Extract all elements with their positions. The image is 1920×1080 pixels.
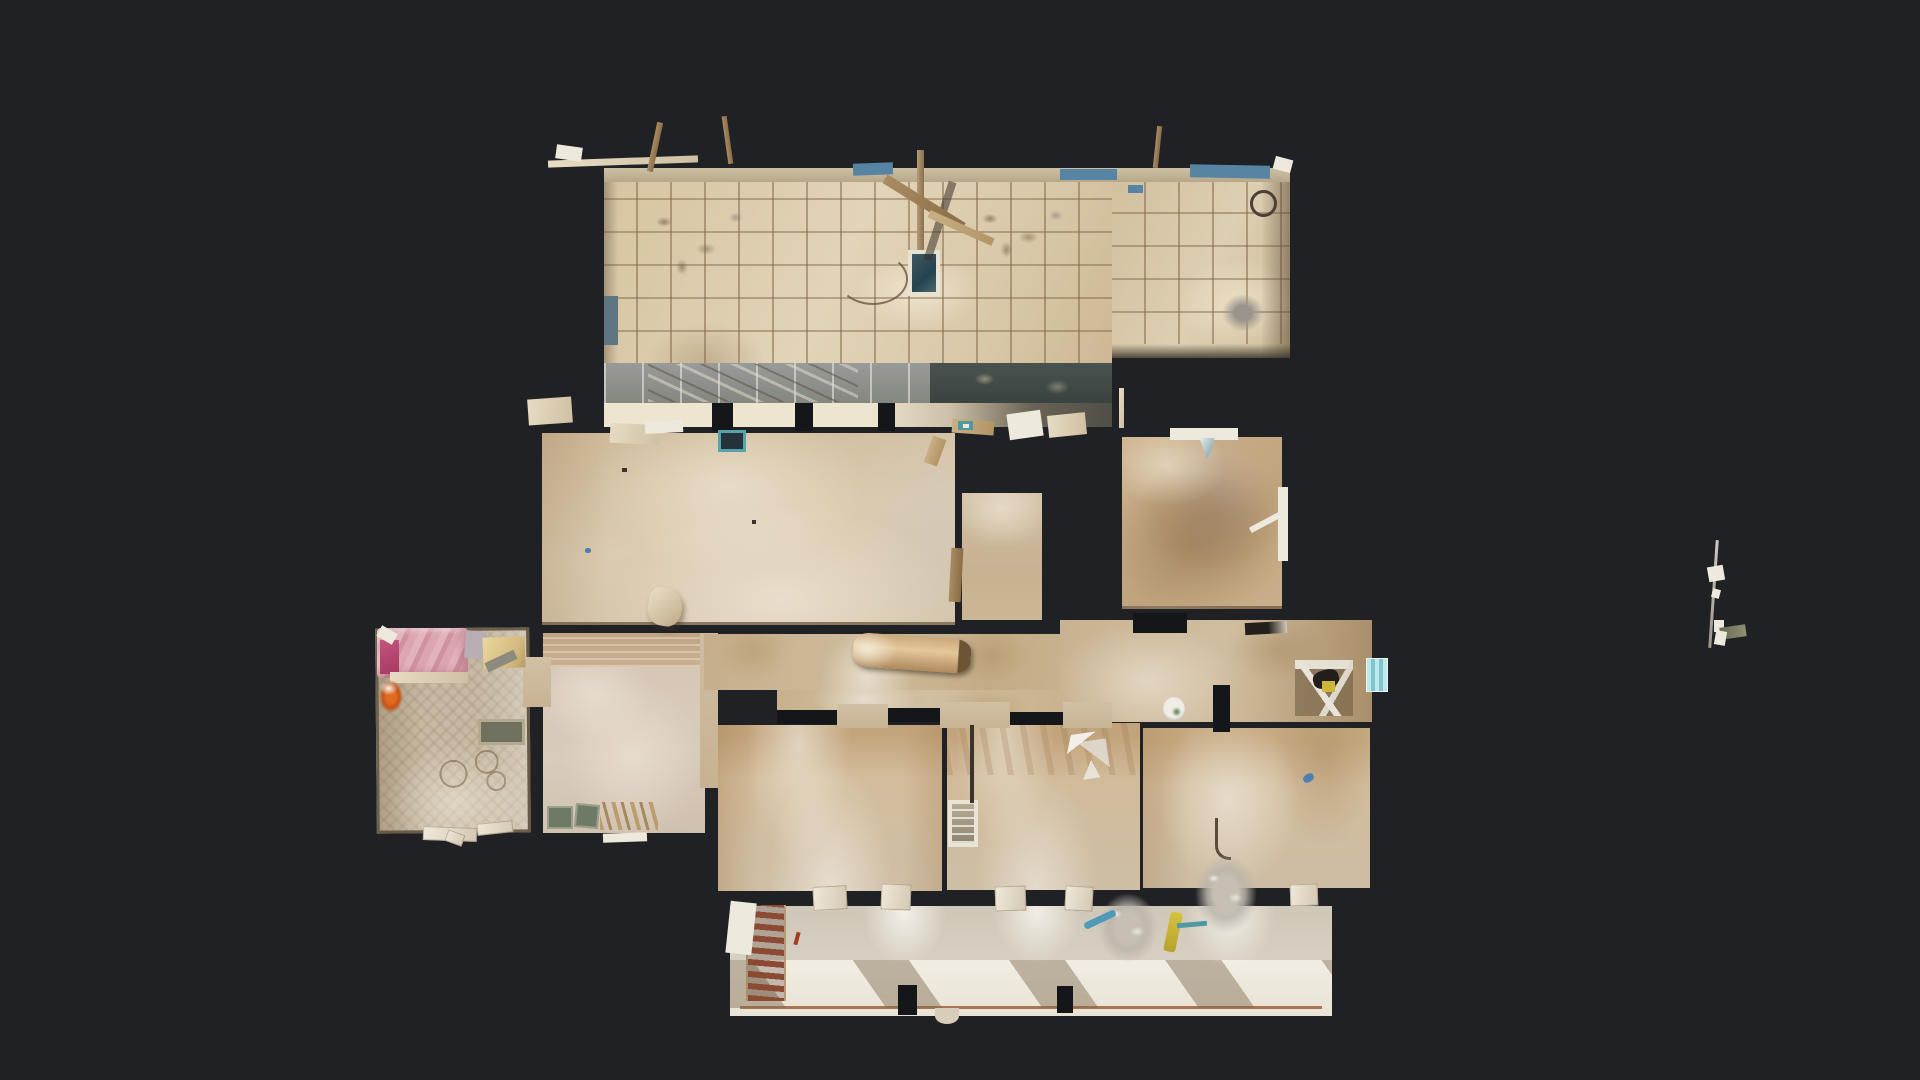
e-stick-pile-debris [600, 802, 658, 830]
tile-clutter-b-debris [968, 200, 1078, 262]
d-orange-debris [379, 680, 403, 713]
white-crumple-debris [1006, 410, 1043, 440]
alcove-darkbit-debris [1245, 621, 1288, 635]
slot-g1-debris [777, 710, 837, 724]
floor-ring-debris [1250, 190, 1277, 217]
door-bridge-g[interactable] [837, 704, 888, 728]
stick-c-debris [1153, 126, 1162, 168]
slot-v1-debris [1213, 685, 1230, 732]
wall-slot-c-debris [878, 403, 895, 431]
wall-slot-a-debris [712, 403, 733, 431]
door-bridge-de[interactable] [523, 657, 551, 707]
tile-clutter-a-debris [640, 195, 760, 285]
slot-h1-debris [1010, 712, 1063, 725]
alcove-yellow-debris [1322, 681, 1335, 692]
sill-h1-debris [995, 885, 1027, 911]
d-magenta-debris [380, 640, 399, 674]
blue-patch-c-debris [1190, 164, 1270, 178]
fragment-a-debris [1707, 565, 1725, 583]
wall-slot-b-debris [795, 403, 813, 431]
v-sliver-debris [1119, 388, 1124, 428]
floorplan-viewer-canvas[interactable] [0, 0, 1920, 1080]
door-shards-debris [1047, 730, 1111, 784]
d-sill-b-debris [476, 820, 513, 836]
sill-i1-debris [1290, 884, 1319, 907]
wire-arc-debris [838, 253, 908, 305]
balcony-bump-debris [935, 1008, 959, 1024]
door-bridge-h[interactable] [940, 702, 1010, 728]
c-doorframe-debris [1278, 487, 1288, 561]
e-sheet-debris [603, 832, 647, 843]
south-room-1[interactable] [718, 725, 942, 891]
balcony-slot-a-debris [898, 985, 917, 1015]
h-pole-debris [970, 725, 974, 803]
d-rug-debris [478, 719, 525, 745]
d-wires-debris [425, 745, 520, 793]
salon-room[interactable] [542, 433, 955, 625]
balcony-dark-debris [930, 363, 1112, 403]
fragment-d-debris [1714, 630, 1727, 646]
h-doorframe-debris [948, 800, 978, 847]
alcove-tealbox-debris [1366, 658, 1388, 692]
i-hookwire-debris [1215, 818, 1231, 860]
rubble-b-debris [1098, 893, 1158, 963]
blue-dot-r-debris [1128, 185, 1143, 193]
door-bridge-i[interactable] [1063, 702, 1112, 728]
sill-g2-debris [881, 883, 912, 910]
balcony-clutter-debris [648, 364, 858, 402]
stick-a-debris [647, 122, 663, 172]
blue-patch-b-debris [1060, 169, 1117, 180]
floor-stain-debris [1222, 294, 1264, 332]
e-greenbox-a-debris [547, 806, 573, 829]
b-speck-a-debris [622, 468, 627, 472]
fringe-flag-debris [555, 144, 583, 161]
b-sill-debris [645, 420, 684, 434]
corridor-bucket-debris [1163, 697, 1185, 721]
b-speck-blue-debris [585, 548, 591, 553]
slot-g2-debris [888, 708, 940, 722]
debris-row-bit-debris [1047, 412, 1087, 438]
sill-g1-debris [812, 885, 847, 911]
south-room-3[interactable] [1143, 728, 1370, 888]
b-speck-b-debris [752, 520, 756, 524]
balcony-slot-b-debris [1057, 986, 1073, 1013]
sill-west-debris [527, 396, 573, 425]
e-greenbox-b-debris [574, 803, 600, 829]
fragment-b-debris [1711, 588, 1721, 599]
stick-b-debris [722, 116, 734, 164]
white-dot-debris [963, 424, 969, 428]
slot-c1-debris [1133, 613, 1187, 633]
stub-hallway[interactable] [962, 493, 1042, 620]
sill-h2-debris [1064, 885, 1093, 911]
teal-doorbox-debris [718, 430, 746, 452]
teal-column-debris [604, 296, 618, 345]
balcony-board-debris [725, 901, 756, 955]
